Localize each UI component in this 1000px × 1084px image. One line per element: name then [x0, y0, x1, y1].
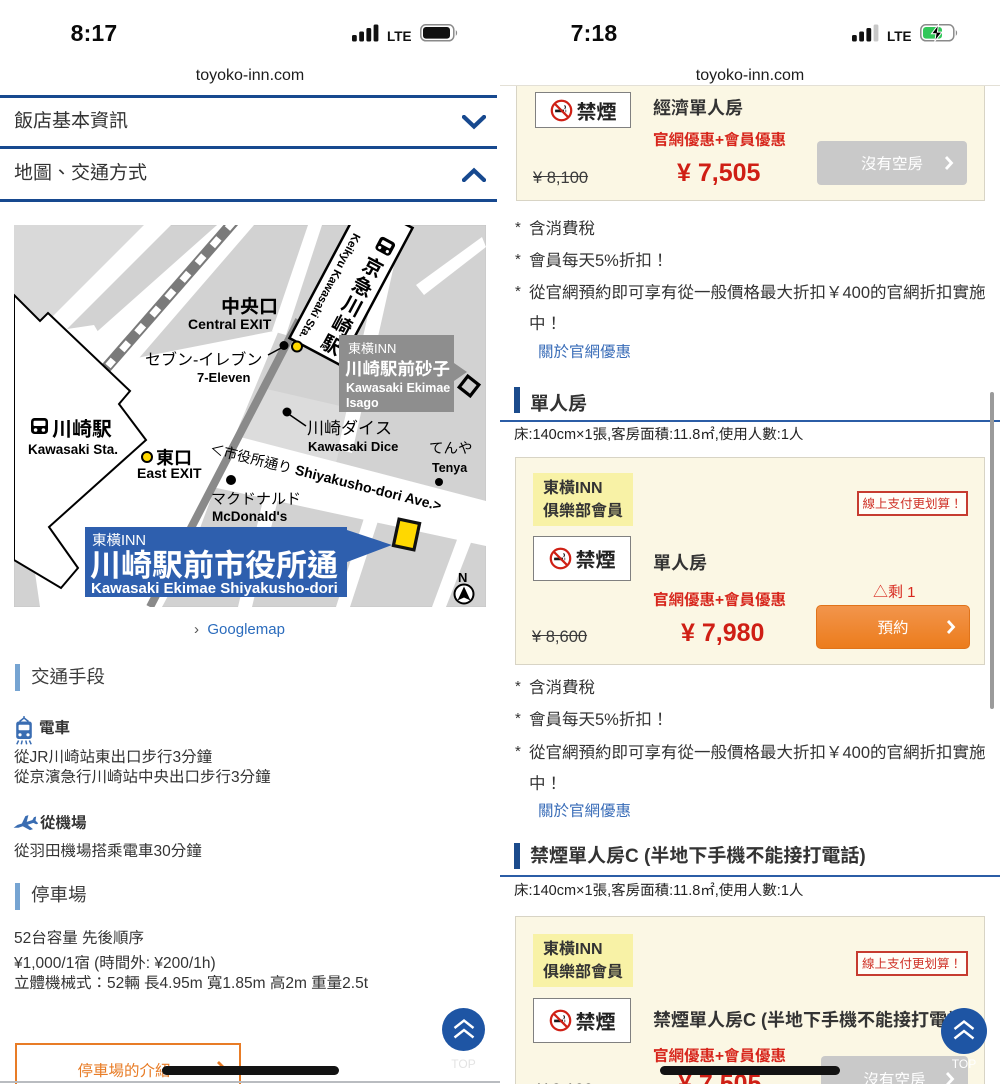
svg-text:Tenya: Tenya	[432, 457, 468, 476]
svg-text:Isago: Isago	[346, 392, 379, 411]
svg-text:Central EXIT: Central EXIT	[188, 314, 272, 334]
svg-text:Kawasaki Dice: Kawasaki Dice	[308, 436, 398, 455]
svg-text:7-Eleven: 7-Eleven	[197, 367, 251, 386]
svg-text:Kawasaki Sta.: Kawasaki Sta.	[28, 438, 118, 458]
svg-text:McDonald's: McDonald's	[212, 505, 287, 525]
svg-text:てんや: てんや	[429, 437, 473, 458]
svg-text:East EXIT: East EXIT	[137, 463, 202, 483]
svg-text:Kawasaki Ekimae Shiyakusho-dor: Kawasaki Ekimae Shiyakusho-dori	[91, 577, 338, 598]
svg-text:東橫INN: 東橫INN	[348, 338, 396, 357]
svg-text:N: N	[458, 567, 467, 586]
